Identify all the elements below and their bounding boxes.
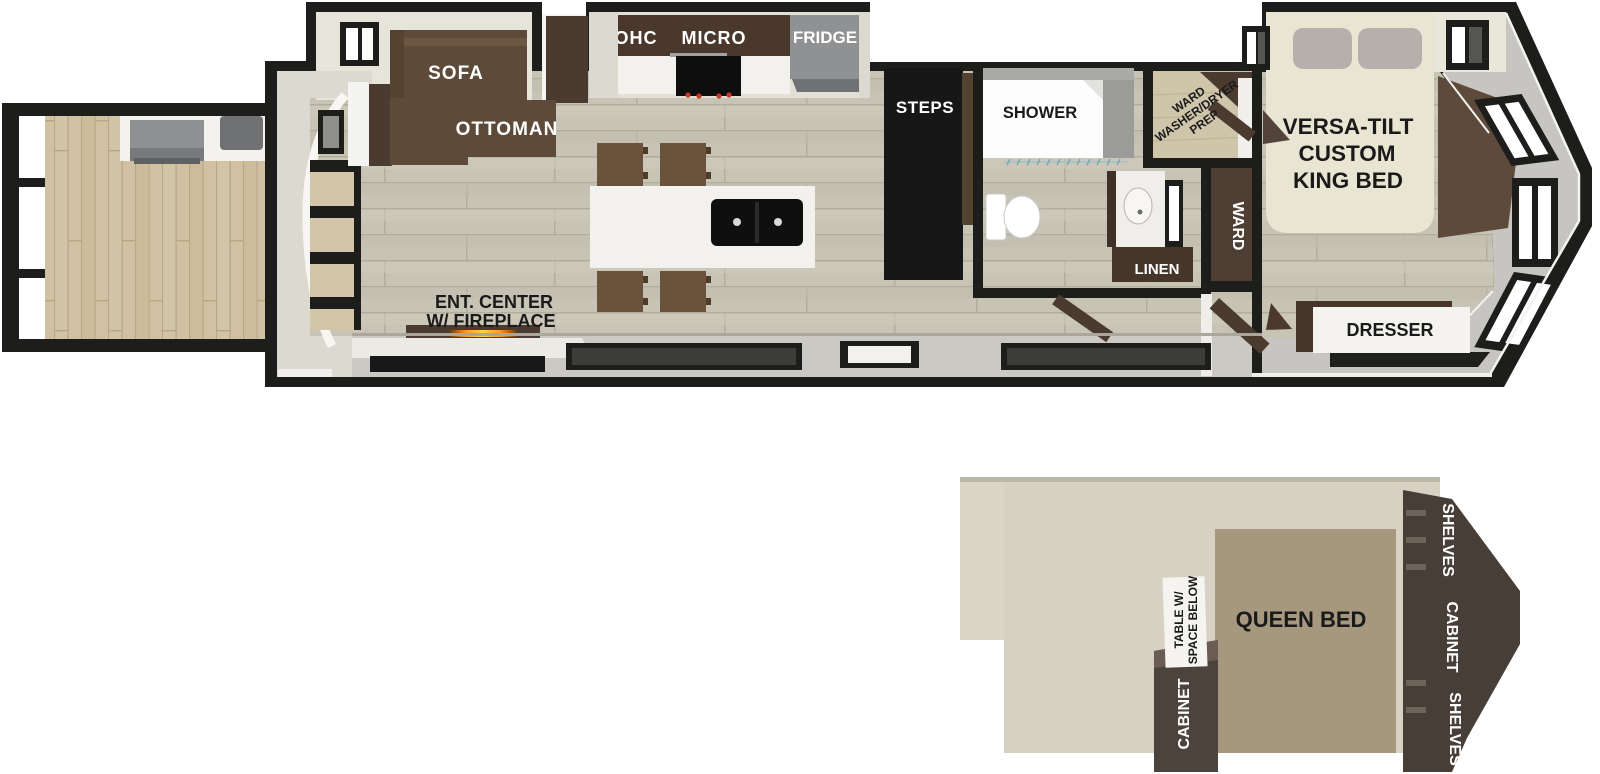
svg-text:TABLE W/: TABLE W/ [1172,591,1186,649]
svg-text:STEPS: STEPS [896,98,954,117]
svg-text:OHC: OHC [615,28,658,48]
svg-text:LINEN: LINEN [1135,261,1180,278]
svg-text:SHELVES: SHELVES [1439,503,1456,577]
svg-text:SOFA: SOFA [428,63,484,84]
svg-text:CABINET: CABINET [1443,601,1460,672]
svg-text:CUSTOM: CUSTOM [1298,141,1395,166]
svg-text:SPACE BELOW: SPACE BELOW [1186,575,1200,664]
svg-text:MICRO: MICRO [682,28,747,48]
svg-text:WARD: WARD [1229,202,1246,251]
svg-text:ENT. CENTER: ENT. CENTER [435,292,553,312]
svg-text:SHELVES: SHELVES [1446,692,1463,766]
svg-text:KING BED: KING BED [1293,168,1403,193]
svg-text:QUEEN BED: QUEEN BED [1236,607,1367,632]
svg-text:FRIDGE: FRIDGE [793,28,857,47]
svg-text:OTTOMAN: OTTOMAN [456,119,559,140]
svg-text:W/ FIREPLACE: W/ FIREPLACE [427,311,556,331]
svg-text:DRESSER: DRESSER [1346,320,1433,340]
svg-text:VERSA-TILT: VERSA-TILT [1283,114,1414,139]
svg-text:CABINET: CABINET [1176,678,1193,749]
svg-text:SHOWER: SHOWER [1003,104,1077,122]
